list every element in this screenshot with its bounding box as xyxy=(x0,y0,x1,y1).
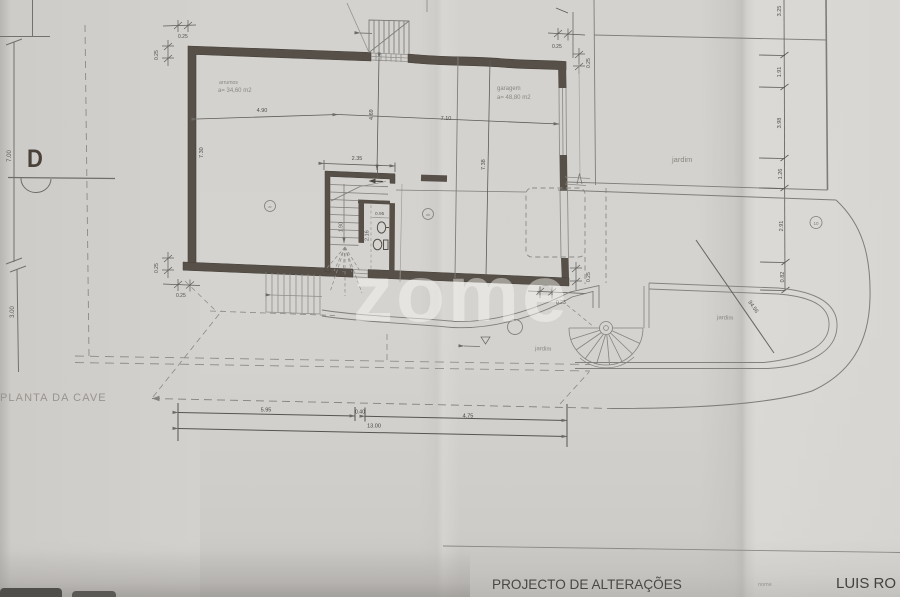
svg-text:0.40: 0.40 xyxy=(355,410,365,416)
svg-text:2.91: 2.91 xyxy=(779,221,785,232)
svg-text:a= 48,80 m2: a= 48,80 m2 xyxy=(497,95,531,101)
svg-text:7.10: 7.10 xyxy=(441,116,452,122)
svg-text:7.38: 7.38 xyxy=(481,159,487,170)
svg-text:2.35: 2.35 xyxy=(352,156,363,162)
svg-text:0.25: 0.25 xyxy=(586,272,592,282)
svg-text:1.91: 1.91 xyxy=(777,67,783,78)
svg-text:1.90: 1.90 xyxy=(339,222,345,232)
svg-text:ar: ar xyxy=(268,204,272,209)
svg-text:jardim: jardim xyxy=(716,315,734,322)
svg-text:10: 10 xyxy=(813,221,819,226)
svg-text:garagem: garagem xyxy=(497,86,521,92)
svg-text:3.00: 3.00 xyxy=(10,306,16,318)
svg-text:5.95: 5.95 xyxy=(261,408,272,414)
svg-text:13.00: 13.00 xyxy=(367,424,381,430)
svg-text:nome: nome xyxy=(758,582,772,588)
svg-text:0.25: 0.25 xyxy=(586,58,592,68)
svg-text:3.25: 3.25 xyxy=(777,6,783,17)
svg-text:0.25: 0.25 xyxy=(154,263,160,273)
svg-text:D: D xyxy=(27,145,43,173)
svg-text:PROJECTO DE ALTERAÇÕES: PROJECTO DE ALTERAÇÕES xyxy=(492,577,682,592)
svg-text:jardim: jardim xyxy=(534,346,552,353)
svg-text:94.56: 94.56 xyxy=(746,300,759,315)
svg-text:7.30: 7.30 xyxy=(199,147,205,158)
svg-text:LUIS RO: LUIS RO xyxy=(836,575,896,592)
svg-text:a= 34,60 m2: a= 34,60 m2 xyxy=(218,88,252,94)
svg-text:2.16: 2.16 xyxy=(365,230,371,241)
svg-text:ub: ub xyxy=(426,212,431,217)
svg-text:7.00: 7.00 xyxy=(7,150,13,162)
svg-text:arrumos: arrumos xyxy=(219,80,238,86)
svg-text:PLANTA DA CAVE: PLANTA DA CAVE xyxy=(0,392,107,404)
svg-text:4.69: 4.69 xyxy=(369,109,375,120)
svg-text:1.26: 1.26 xyxy=(778,169,784,180)
svg-text:3.98: 3.98 xyxy=(777,118,783,129)
svg-text:0.82: 0.82 xyxy=(780,272,786,283)
svg-text:0.25: 0.25 xyxy=(176,293,186,299)
svg-text:0.25: 0.25 xyxy=(552,44,562,50)
svg-text:0.95: 0.95 xyxy=(375,211,385,217)
svg-text:0.25: 0.25 xyxy=(178,34,188,40)
svg-text:jardim: jardim xyxy=(671,155,692,164)
svg-text:4.90: 4.90 xyxy=(257,108,268,114)
svg-text:4.75: 4.75 xyxy=(463,414,474,420)
svg-text:0.25: 0.25 xyxy=(154,50,160,60)
